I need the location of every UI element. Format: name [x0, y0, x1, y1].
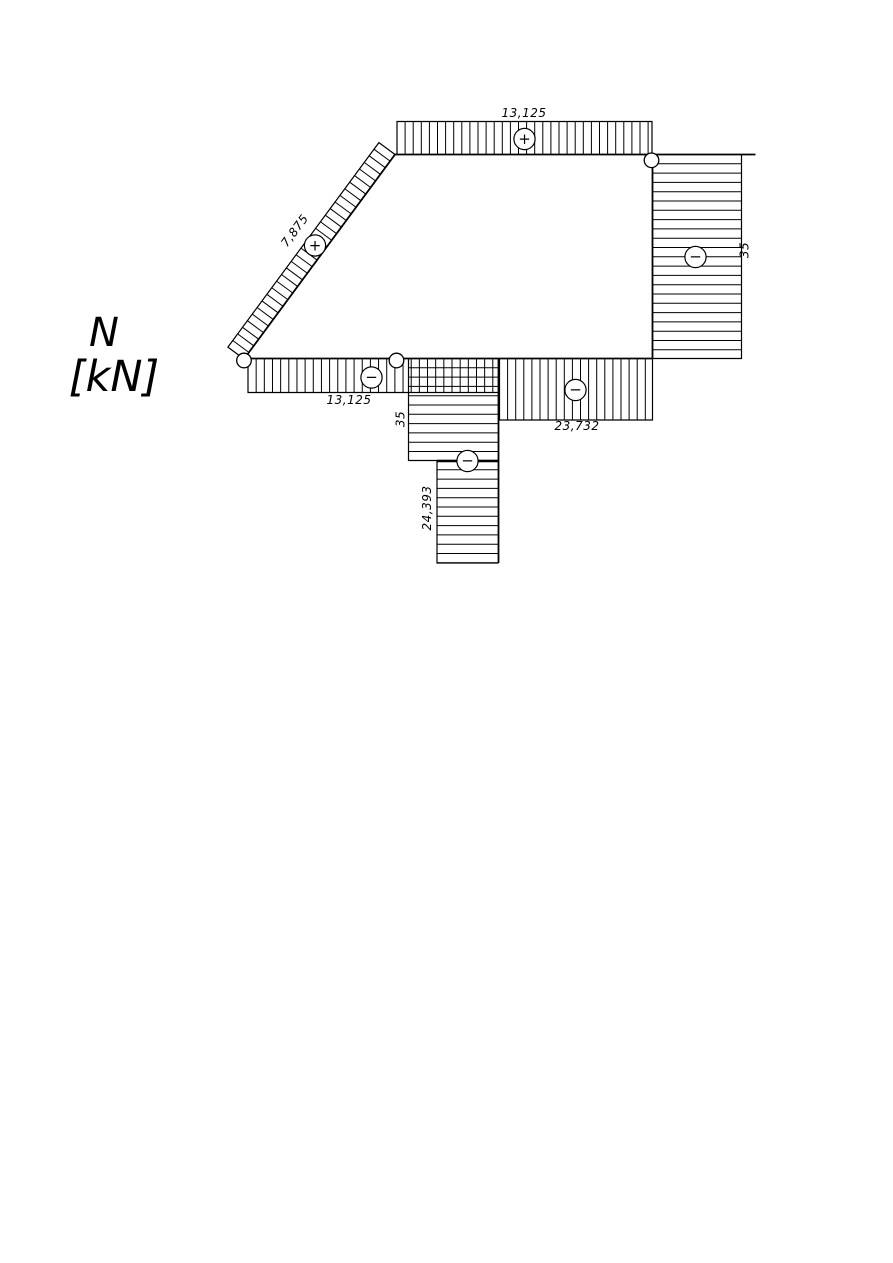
- sign-bottom-chord-left: −: [361, 367, 382, 388]
- label-lower-column-bottom-value: 24,393: [420, 486, 434, 531]
- sign-diagonal: +: [304, 235, 325, 256]
- drawing-canvas: + + − − − − 13,125 7,875 35 13,125 23,73…: [0, 0, 893, 1263]
- sign-lower-column: −: [457, 450, 478, 471]
- label-right-column-value: 35: [738, 242, 752, 258]
- hatch-line: [359, 169, 375, 181]
- plus-sign-icon: +: [518, 130, 531, 148]
- hinge-icon-bottom-left: [237, 353, 252, 368]
- minus-sign-icon: −: [689, 248, 702, 266]
- label-top-chord-value: 13,125: [502, 106, 547, 120]
- hatch-line: [252, 314, 268, 326]
- hatch-line: [330, 209, 346, 221]
- hatch-line: [272, 288, 288, 300]
- hatch-line: [267, 294, 283, 306]
- minus-sign-icon: −: [569, 381, 582, 399]
- label-bottom-chord-right-value: 23,732: [555, 419, 600, 433]
- hatch-line: [345, 189, 361, 201]
- hatch-line: [320, 222, 336, 234]
- sign-bottom-chord-right: −: [565, 379, 586, 400]
- hatch-line: [247, 321, 263, 333]
- hatch-line: [233, 341, 249, 353]
- minus-sign-icon: −: [365, 368, 378, 386]
- hatch-line: [355, 176, 371, 188]
- minus-sign-icon: −: [461, 452, 474, 470]
- hatch-line: [374, 149, 390, 161]
- sign-top-chord: +: [514, 128, 535, 149]
- hinge-icon-bottom-middle: [389, 353, 404, 368]
- hatch-line: [277, 281, 293, 293]
- diagonal-member: [244, 155, 395, 360]
- hatch-lower-column-bottom: [437, 470, 499, 563]
- hatch-line: [281, 275, 297, 287]
- hatch-line: [257, 308, 273, 320]
- label-lower-column-top-value: 35: [394, 411, 408, 427]
- hatch-line: [335, 202, 351, 214]
- hatch-line: [350, 182, 366, 194]
- hatch-line: [325, 215, 341, 227]
- plus-sign-icon: +: [309, 237, 322, 255]
- hatch-line: [243, 327, 259, 339]
- diagram-title-symbol: N: [89, 310, 119, 356]
- hatch-line: [262, 301, 278, 313]
- sign-right-column: −: [685, 246, 706, 267]
- hatch-line: [340, 195, 356, 207]
- hatch-line: [296, 255, 312, 267]
- axial-force-diagram: + + − − − − 13,125 7,875 35 13,125 23,73…: [0, 0, 893, 1263]
- hatch-line: [369, 156, 385, 168]
- label-bottom-chord-left-value: 13,125: [327, 393, 372, 407]
- hatch-line: [238, 334, 254, 346]
- hatch-line: [364, 162, 380, 174]
- hatch-line: [286, 268, 302, 280]
- diagram-title-unit: [kN]: [69, 352, 160, 402]
- hatch-line: [291, 261, 307, 273]
- hinge-icon-top-right: [644, 153, 659, 168]
